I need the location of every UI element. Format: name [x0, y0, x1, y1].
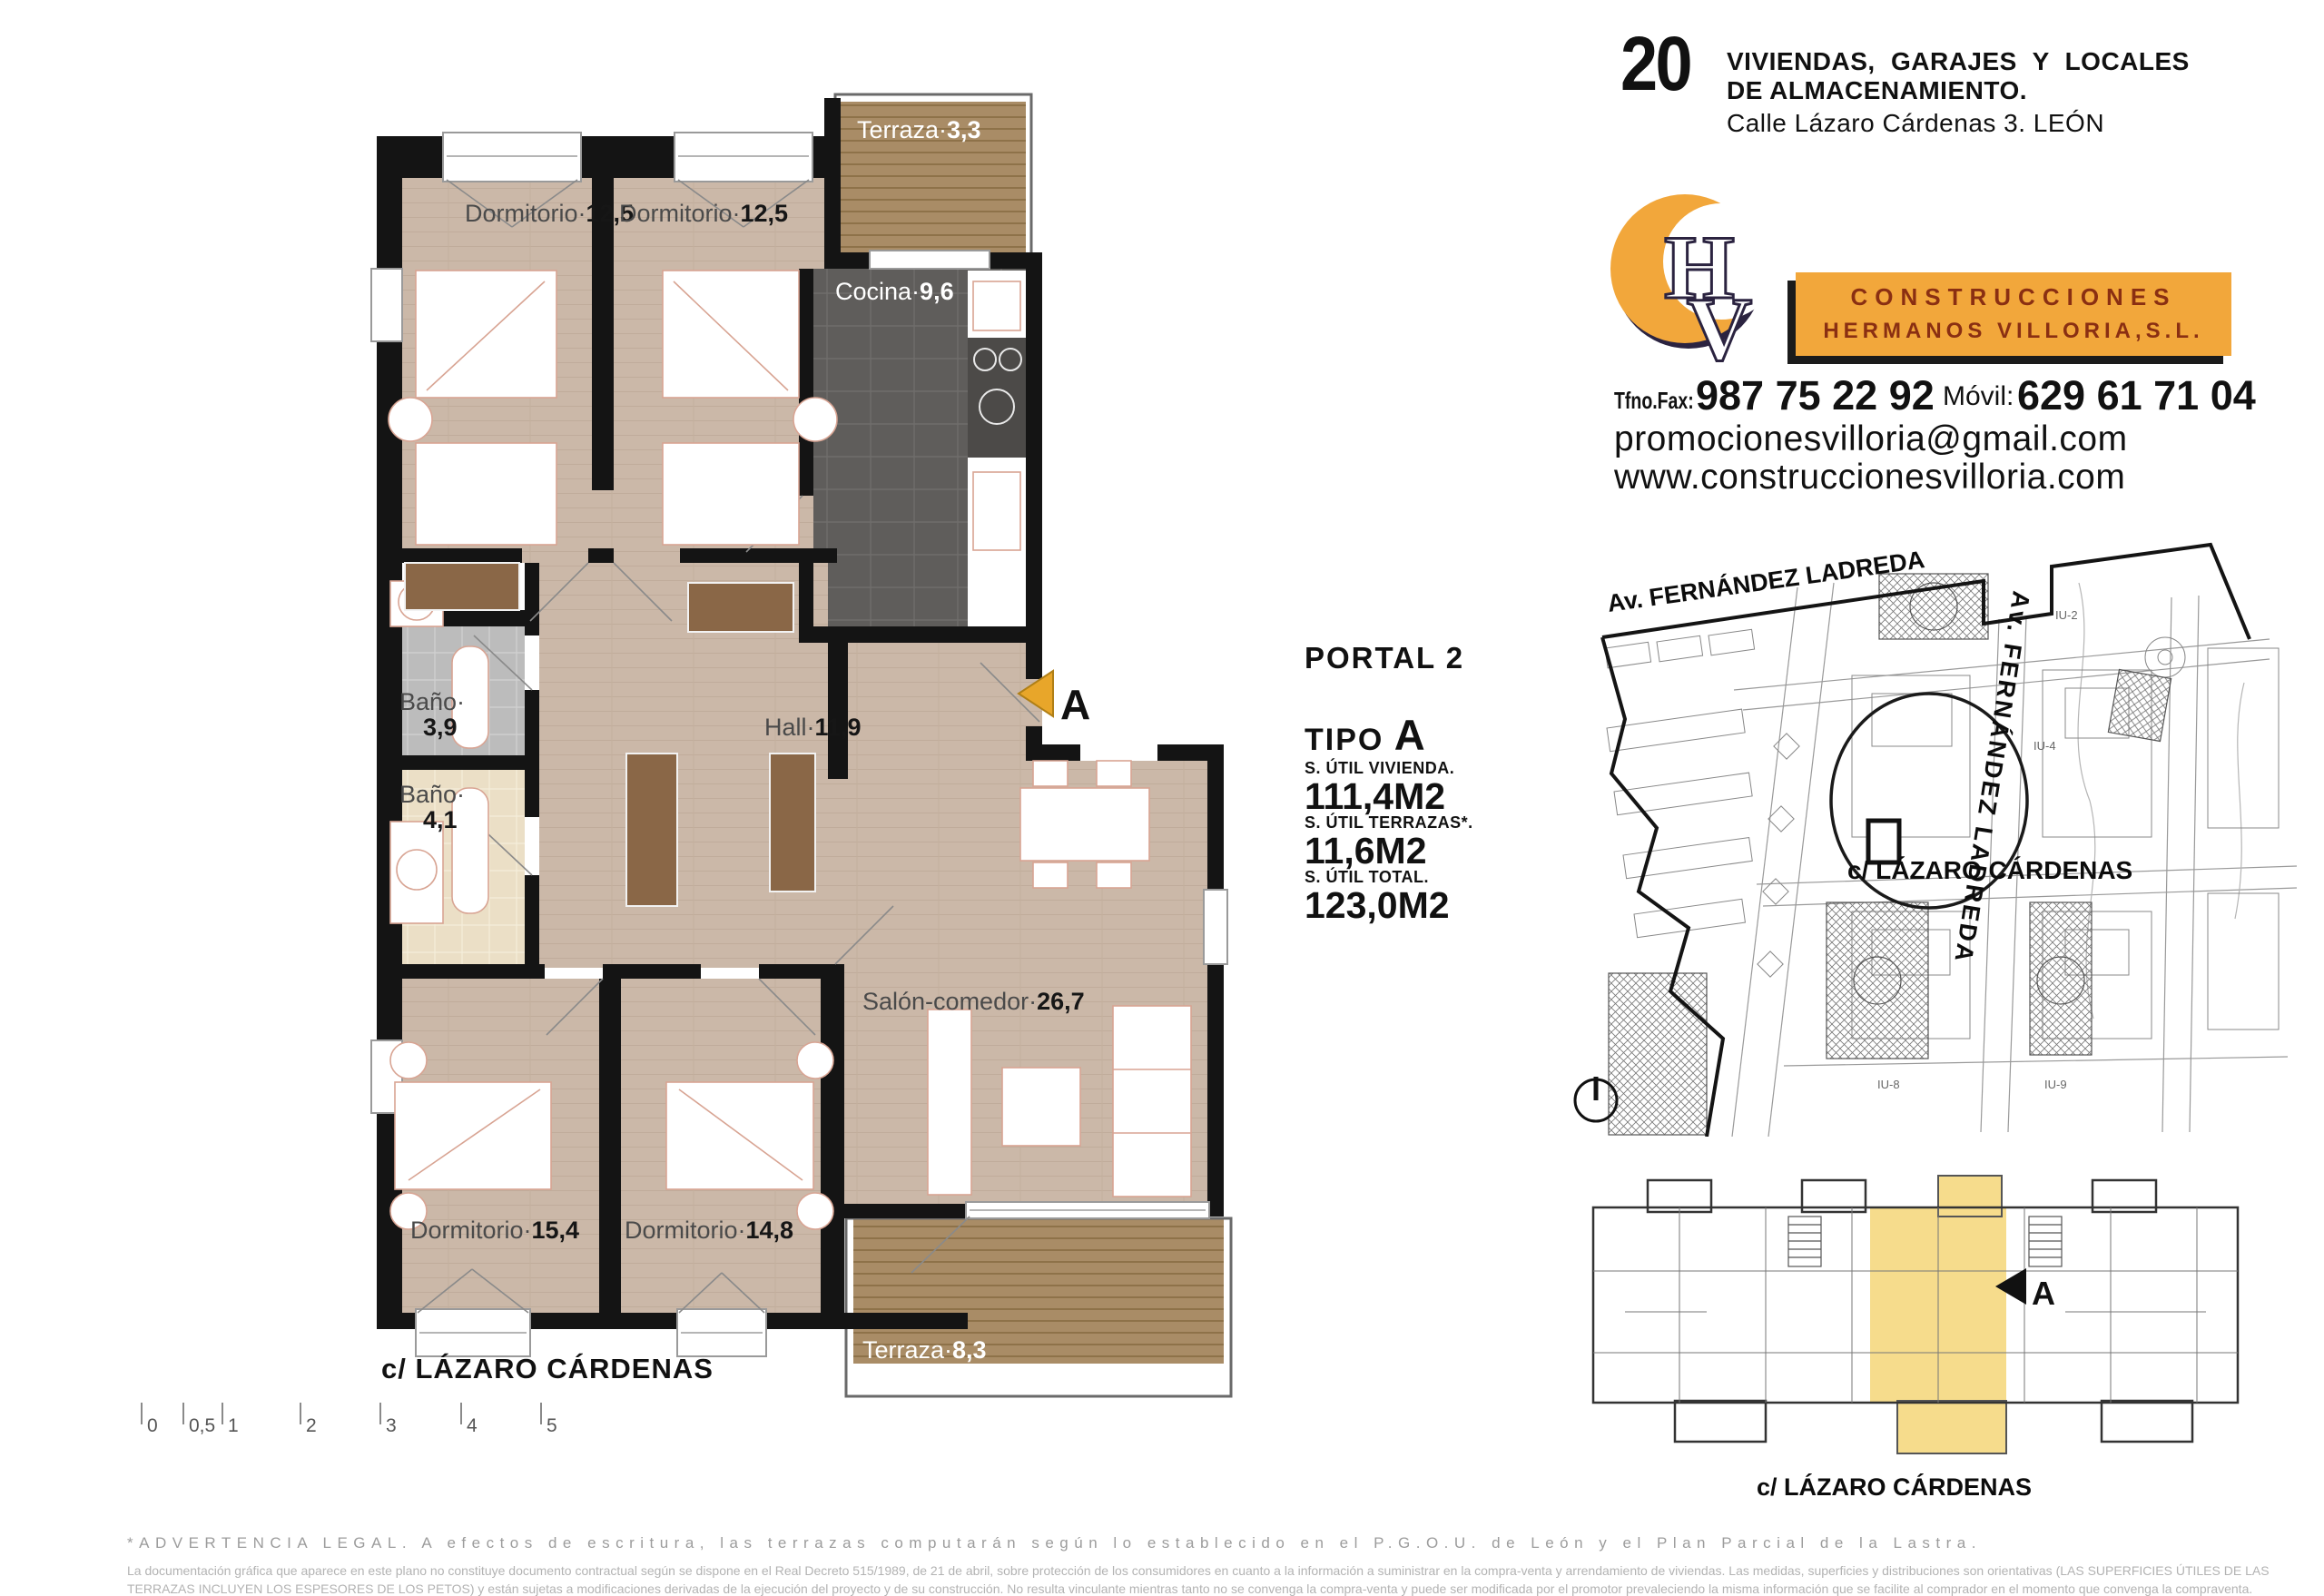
scale-bar: 0 0,5 1 2 3 4 5 [141, 1403, 704, 1450]
section-marker-label: A [1060, 681, 1090, 728]
map-zone-label-iu8: IU-8 [1877, 1078, 1900, 1091]
room-label-terraza-bottom: Terraza·8,3 [862, 1336, 987, 1364]
area-terrazas-value: 11,6M2 [1305, 830, 1427, 872]
room-value-bano-2: 4,1 [423, 806, 458, 833]
portal-title: PORTAL 2 [1305, 641, 1464, 675]
scale-tick-label: 5 [547, 1415, 557, 1437]
phone-label: Tfno.Fax: [1614, 387, 1694, 415]
phone-number: 987 75 22 92 [1696, 372, 1935, 419]
logo-letter-v: V [1687, 279, 1752, 372]
mobile-label: Móvil: [1943, 381, 2014, 412]
scale-tick-label: 0,5 [189, 1415, 215, 1437]
company-banner: CONSTRUCCIONES HERMANOS VILLORIA,S.L. [1796, 272, 2231, 356]
room-label-bano-2: Baño· [399, 781, 465, 808]
scale-tick: 0 [141, 1403, 143, 1424]
banner-line2: HERMANOS VILLORIA,S.L. [1796, 319, 2231, 344]
scale-tick-label: 1 [228, 1415, 239, 1437]
plan-street-label: c/ LÁZARO CÁRDENAS [381, 1353, 714, 1385]
legal-fine-print-line2: TERRAZAS INCLUYEN LOS ESPESORES DE LOS P… [127, 1581, 2252, 1596]
scale-tick-label: 4 [467, 1415, 478, 1437]
room-label-dormitorio-4: Dormitorio·14,8 [625, 1217, 793, 1244]
legal-warning: *ADVERTENCIA LEGAL. A efectos de escritu… [127, 1534, 1982, 1552]
project-number: 20 [1620, 20, 1690, 108]
keyplan-marker-label: A [2032, 1275, 2055, 1312]
map-zone-label-iu9: IU-9 [2044, 1078, 2067, 1091]
scale-tick: 5 [540, 1403, 542, 1424]
map-zone-label-iu4: IU-4 [2033, 739, 2056, 753]
scale-tick-label: 2 [306, 1415, 317, 1437]
website-url: www.construccionesvilloria.com [1614, 458, 2125, 498]
room-label-terraza-top: Terraza·3,3 [857, 116, 981, 143]
legal-fine-print-line1: La documentación gráfica que aparece en … [127, 1563, 2270, 1578]
scale-tick: 3 [379, 1403, 381, 1424]
flyer-page: { "header": { "number": "20", "title_lin… [0, 0, 2324, 1590]
project-address: Calle Lázaro Cárdenas 3. LEÓN [1727, 109, 2104, 138]
email-address: promocionesvilloria@gmail.com [1614, 419, 2128, 459]
tipo-value: A [1394, 711, 1427, 759]
scale-tick: 4 [460, 1403, 462, 1424]
room-label-salon: Salón-comedor·26,7 [862, 988, 1085, 1015]
scale-tick: 0,5 [182, 1403, 184, 1424]
room-label-bano-1: Baño· [399, 688, 465, 715]
area-vivienda-value: 111,4M2 [1305, 775, 1445, 818]
mobile-number: 629 61 71 04 [2017, 372, 2256, 419]
scale-tick-label: 0 [147, 1415, 158, 1437]
map-zone-label-iu2: IU-2 [2055, 608, 2078, 622]
key-plan: A c/ LÁZARO CÁRDENAS [1571, 1167, 2288, 1525]
room-label-cocina: Cocina·9,6 [835, 278, 954, 305]
room-label-dormitorio-3: Dormitorio·15,4 [410, 1217, 579, 1244]
tipo-label: TIPO [1305, 723, 1384, 757]
scale-tick-label: 3 [386, 1415, 397, 1437]
banner-line1: CONSTRUCCIONES [1796, 283, 2231, 311]
room-label-hall: Hall·11,9 [764, 714, 862, 741]
scale-tick: 1 [222, 1403, 223, 1424]
scale-tick: 2 [300, 1403, 301, 1424]
company-logo-icon: H V [1609, 182, 1790, 372]
map-street-bottom-label: c/ LÁZARO CÁRDENAS [1847, 856, 2132, 884]
room-label-dormitorio-2: Dormitorio·12,5 [619, 200, 788, 227]
room-label-dormitorio-1: Dormitorio·12,5 [465, 200, 634, 227]
keyplan-street-label: c/ LÁZARO CÁRDENAS [1757, 1473, 2032, 1501]
location-map: Av. FERNÁNDEZ LADREDA Av. FERNÁNDEZ LADR… [1571, 501, 2324, 1137]
project-title-line2: DE ALMACENAMIENTO. [1727, 76, 2027, 105]
area-total-value: 123,0M2 [1305, 884, 1450, 927]
project-title-line1: VIVIENDAS, GARAJES Y LOCALES [1727, 47, 2190, 76]
room-value-bano-1: 3,9 [423, 714, 458, 741]
tipo-title: TIPO A [1305, 710, 1427, 760]
